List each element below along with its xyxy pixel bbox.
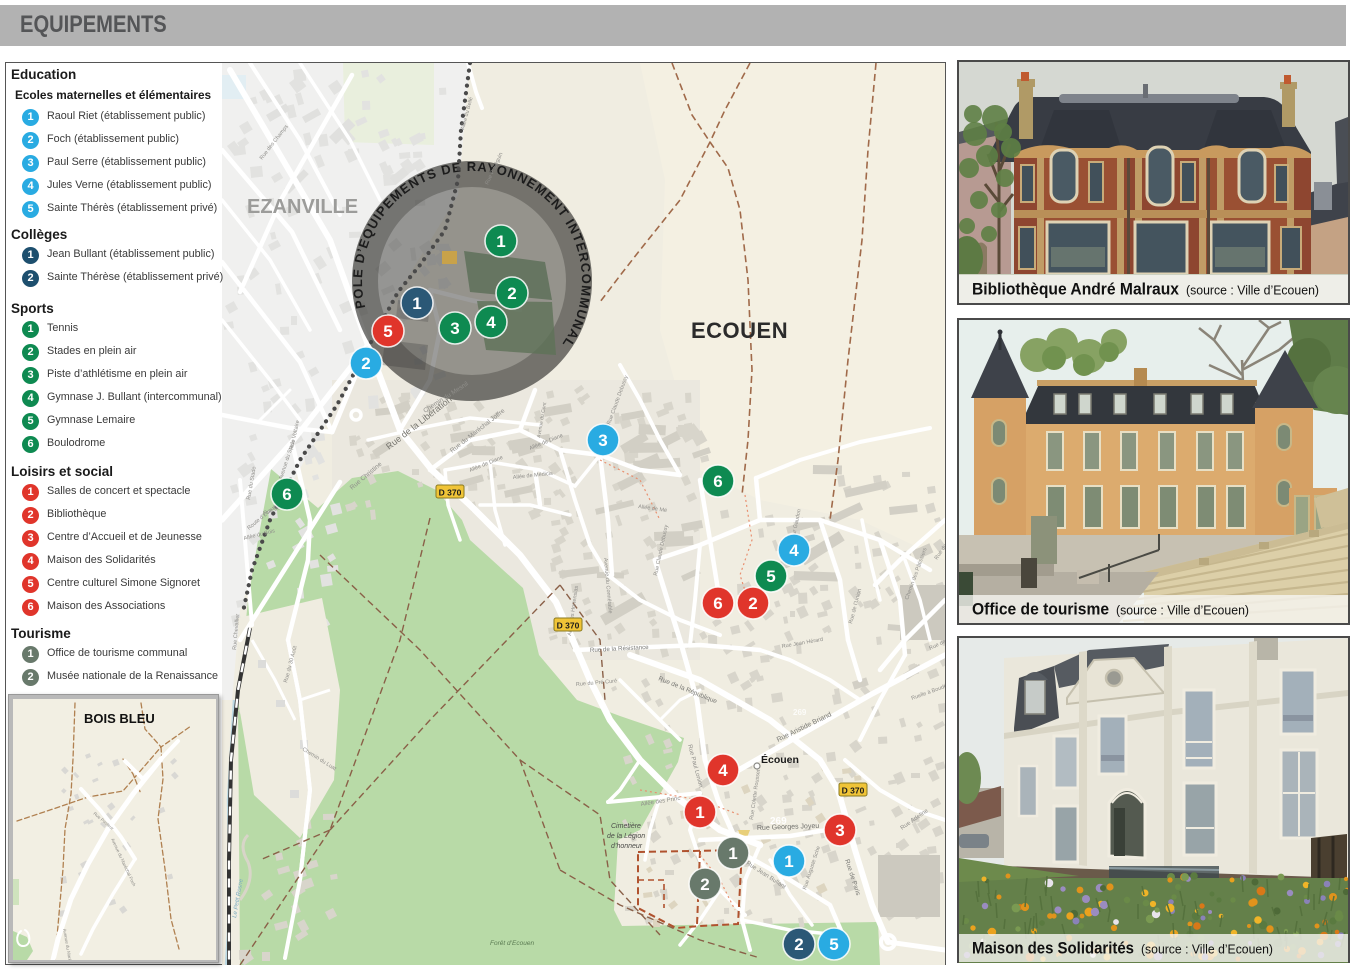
svg-text:1: 1 (496, 232, 505, 251)
svg-text:Maison des Solidarités: Maison des Solidarités (972, 940, 1134, 958)
svg-text:d’honneur: d’honneur (611, 843, 643, 850)
svg-text:(source : Ville d’Ecouen): (source : Ville d’Ecouen) (1141, 942, 1273, 957)
svg-text:Forêt d’Ecouen: Forêt d’Ecouen (490, 940, 534, 947)
svg-text:Écouen: Écouen (761, 753, 799, 766)
svg-text:5: 5 (829, 935, 838, 954)
svg-text:(source : Ville d’Ecouen): (source : Ville d’Ecouen) (1186, 283, 1319, 298)
svg-text:4: 4 (718, 761, 728, 780)
svg-text:4: 4 (486, 313, 496, 332)
svg-text:Office de tourisme: Office de tourisme (972, 601, 1109, 619)
svg-text:1: 1 (784, 852, 793, 871)
svg-text:de la Légion: de la Légion (607, 833, 645, 840)
svg-text:1: 1 (728, 844, 737, 863)
svg-text:1: 1 (695, 803, 704, 822)
svg-text:3: 3 (598, 431, 607, 450)
svg-text:1: 1 (412, 294, 421, 313)
svg-text:269: 269 (770, 816, 787, 827)
svg-text:5: 5 (766, 567, 775, 586)
svg-text:4: 4 (789, 541, 799, 560)
svg-text:D 370: D 370 (557, 621, 580, 631)
svg-text:EZANVILLE: EZANVILLE (247, 196, 358, 218)
svg-text:6: 6 (713, 594, 722, 613)
svg-text:Cimetière: Cimetière (611, 823, 641, 830)
svg-text:3: 3 (835, 821, 844, 840)
svg-text:D 370: D 370 (842, 786, 865, 796)
svg-text:(source : Ville d’Ecouen): (source : Ville d’Ecouen) (1116, 603, 1249, 618)
svg-text:BOIS BLEU: BOIS BLEU (84, 711, 155, 726)
svg-text:6: 6 (713, 472, 722, 491)
svg-text:5: 5 (383, 322, 392, 341)
svg-text:2: 2 (507, 284, 516, 303)
svg-text:269: 269 (793, 708, 807, 717)
svg-text:2: 2 (361, 354, 370, 373)
svg-text:Bibliothèque André Malraux: Bibliothèque André Malraux (972, 281, 1180, 299)
svg-text:2: 2 (748, 594, 757, 613)
svg-text:6: 6 (282, 485, 291, 504)
svg-text:2: 2 (700, 875, 709, 894)
svg-text:ECOUEN: ECOUEN (691, 318, 788, 343)
svg-text:2: 2 (794, 935, 803, 954)
svg-text:3: 3 (450, 319, 459, 338)
svg-text:D 370: D 370 (439, 488, 462, 498)
